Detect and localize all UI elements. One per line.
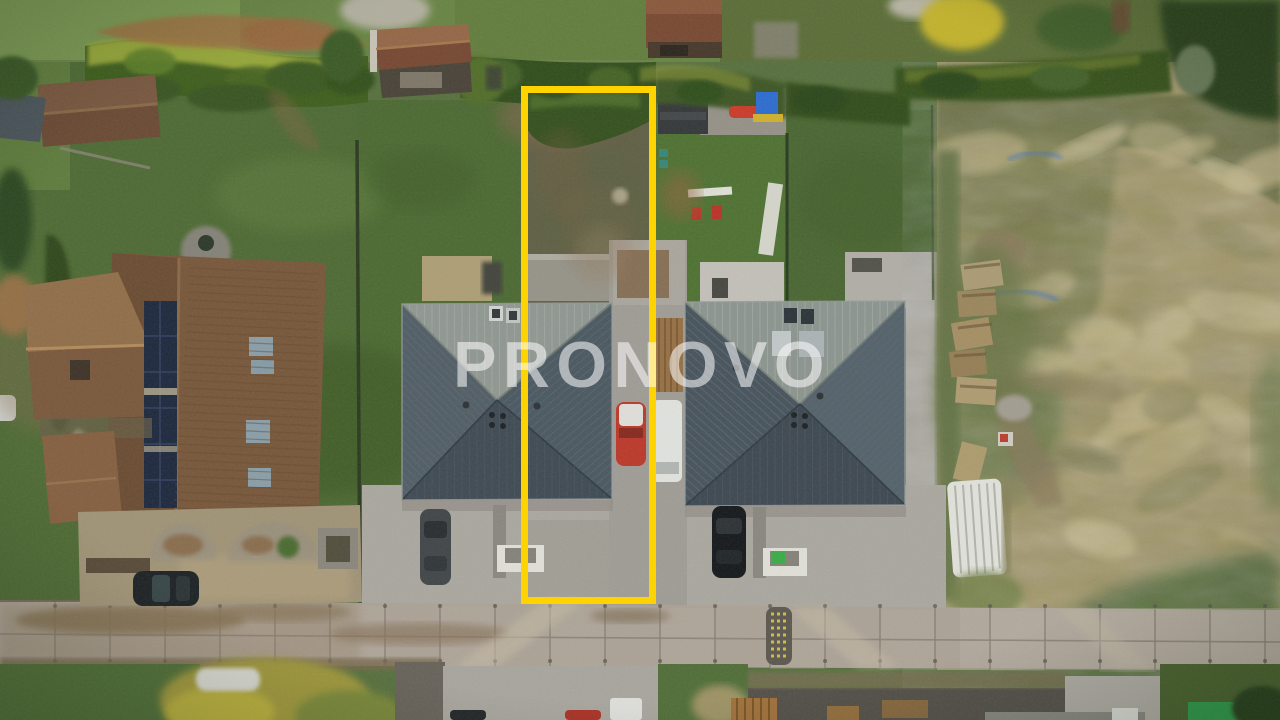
svg-text:PRONOVO: PRONOVO xyxy=(453,328,831,401)
